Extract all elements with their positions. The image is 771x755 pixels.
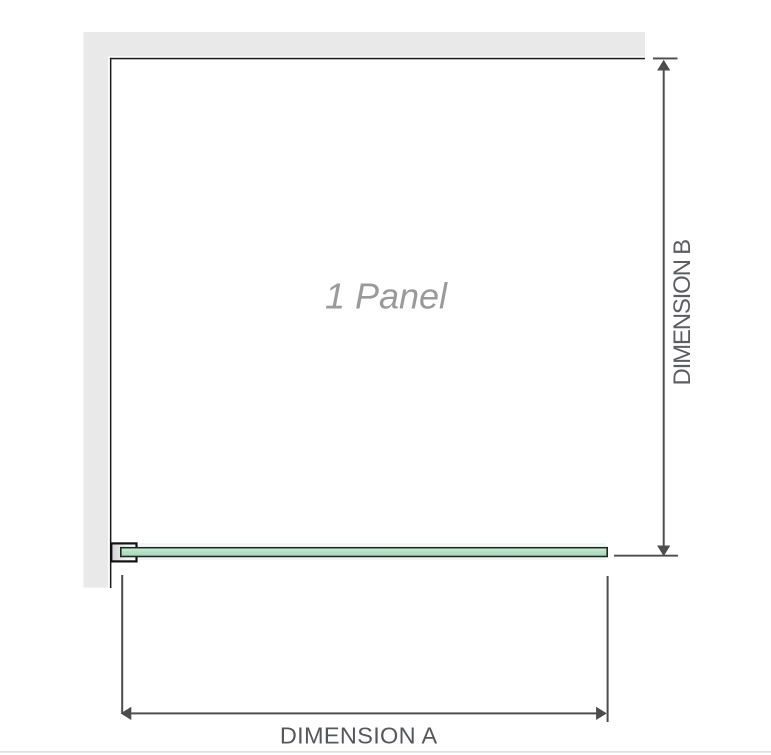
- svg-text:1 Panel: 1 Panel: [325, 276, 448, 317]
- svg-text:DIMENSION A: DIMENSION A: [280, 723, 438, 749]
- svg-text:DIMENSION B: DIMENSION B: [669, 240, 696, 386]
